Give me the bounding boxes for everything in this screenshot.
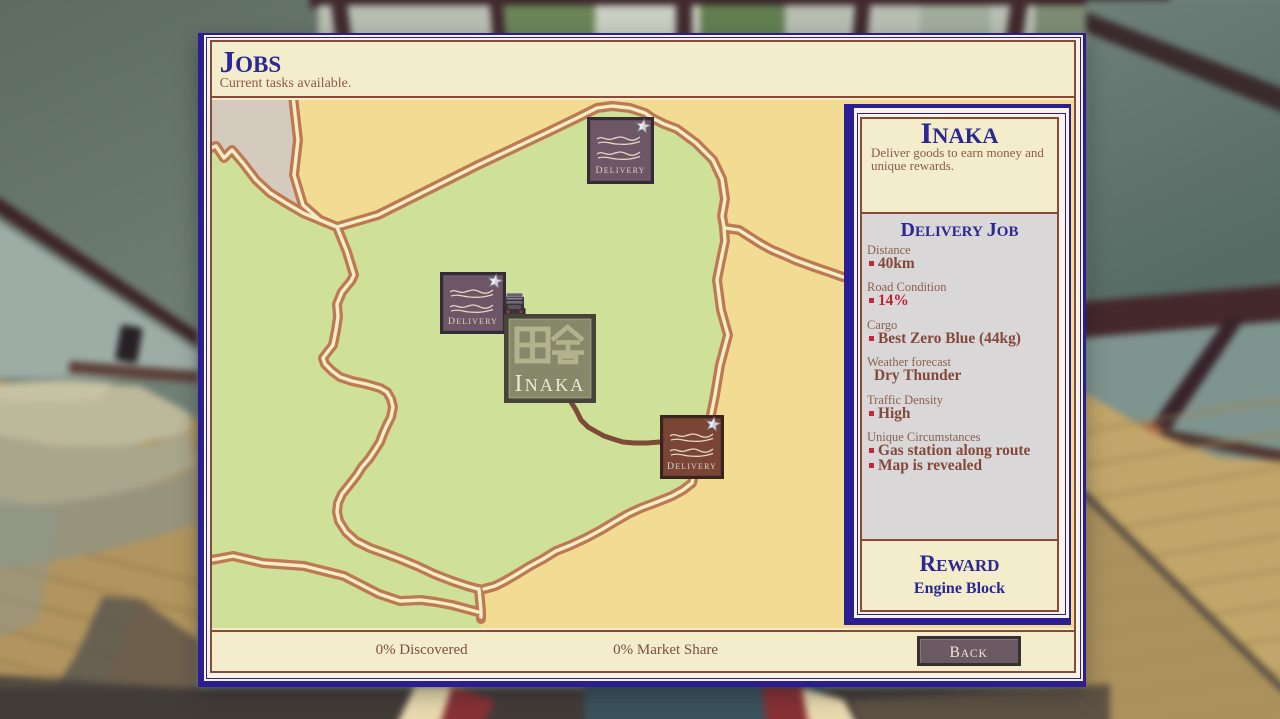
svg-text:DELIVERY: DELIVERY	[595, 165, 645, 176]
svg-text:INAKA: INAKA	[514, 371, 585, 397]
svg-text:DELIVERY: DELIVERY	[667, 461, 717, 472]
svg-text:DELIVERY: DELIVERY	[448, 316, 498, 327]
